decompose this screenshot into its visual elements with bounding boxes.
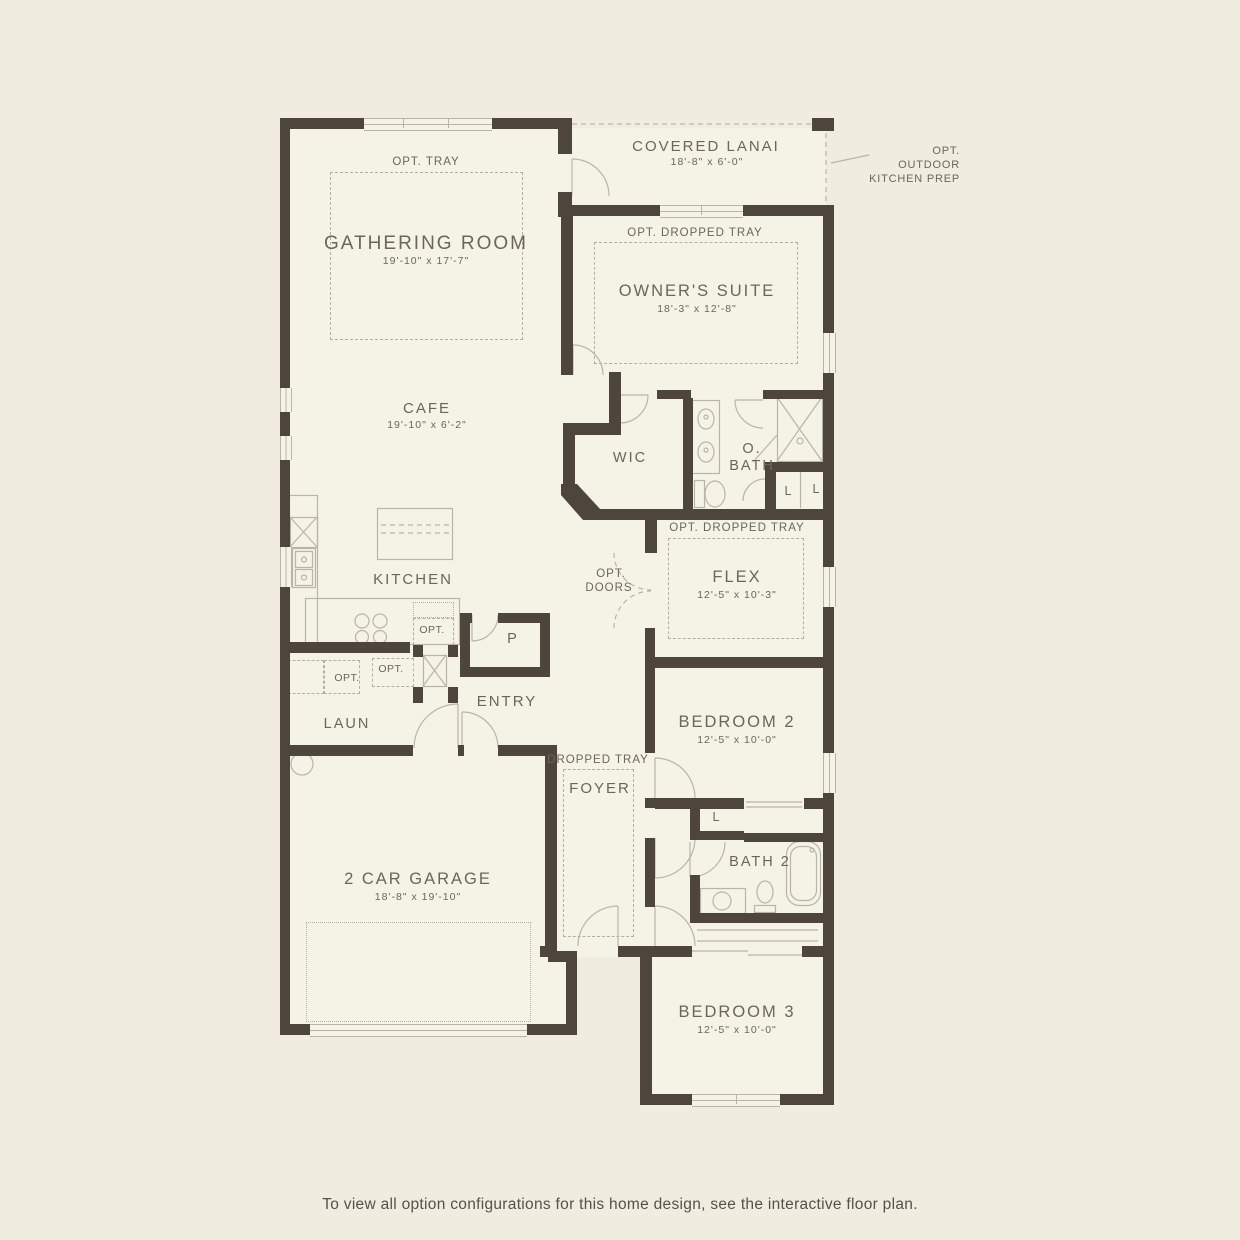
wall-segment <box>823 793 834 948</box>
wall-segment <box>645 628 655 753</box>
wall-segment <box>823 668 834 753</box>
annotation-opt-2: OPT. <box>378 663 403 675</box>
bathtub <box>787 842 821 906</box>
room-label-bedroom2: BEDROOM 2 <box>678 713 795 732</box>
wall-segment <box>690 831 744 840</box>
wall-segment <box>563 423 575 488</box>
leader-line <box>831 155 869 163</box>
room-label-garage: 2 CAR GARAGE <box>344 870 492 889</box>
wall-segment <box>448 687 458 703</box>
wall-segment <box>280 1024 310 1035</box>
room-dims-flex: 12'-5" x 10'-3" <box>697 589 777 601</box>
wall-segment <box>609 372 621 430</box>
wall-segment <box>280 587 290 1035</box>
room-label-linen-1: L <box>785 484 792 498</box>
wall-segment <box>280 118 290 388</box>
wall-segment <box>780 1094 834 1105</box>
window <box>280 436 292 460</box>
wall-segment <box>280 642 410 653</box>
window-mullion <box>403 119 404 128</box>
wall-segment <box>448 645 458 657</box>
footer-caption: To view all option configurations for th… <box>0 1196 1240 1214</box>
bedroom2-closet-rod <box>746 802 802 807</box>
window <box>823 753 836 793</box>
room-dims-covered-lanai: 18'-8" x 6'-0" <box>671 156 744 168</box>
wall-segment <box>413 645 423 657</box>
fixture-linework <box>0 0 1240 1240</box>
garage-door <box>310 1024 527 1037</box>
room-label-kitchen: KITCHEN <box>373 571 453 588</box>
room-dims-owners-suite: 18'-3" x 12'-8" <box>657 303 737 315</box>
annotation-dropped-tray-foyer: DROPPED TRAY <box>547 754 649 766</box>
wall-segment <box>655 798 744 809</box>
kitchen-sink <box>293 549 316 588</box>
wall-segment <box>280 118 364 129</box>
room-label-wic: WIC <box>613 450 647 466</box>
wall-segment <box>618 946 692 957</box>
wall-segment <box>645 657 834 668</box>
window <box>364 118 492 131</box>
window <box>823 333 836 373</box>
room-label-owners-suite: OWNER'S SUITE <box>619 282 776 301</box>
wall-segment <box>645 517 657 553</box>
bedroom3-closet-rod <box>692 930 818 955</box>
annotation-opt-1: OPT. <box>419 624 444 636</box>
window <box>280 388 292 412</box>
wall-segment <box>561 205 660 216</box>
room-dims-gathering-room: 19'-10" x 17'-7" <box>383 255 469 267</box>
wall-segment <box>492 118 568 129</box>
window <box>280 547 292 587</box>
wall-segment <box>640 946 652 1105</box>
wall-segment <box>548 951 577 962</box>
corner-cabinet <box>290 517 318 548</box>
annotation-outdoor-kitchen: OPT. OUTDOOR KITCHEN PREP <box>868 144 960 186</box>
water-heater <box>291 753 313 775</box>
room-label-pantry: P <box>507 631 519 647</box>
wall-segment <box>527 1024 577 1035</box>
wall-segment <box>280 745 413 756</box>
wall-segment <box>683 398 693 509</box>
room-label-linen-2: L <box>813 482 820 496</box>
room-label-flex: FLEX <box>712 568 761 587</box>
wall-segment <box>804 798 834 809</box>
annotation-opt-doors-line2: DOORS <box>585 582 632 594</box>
annotation-opt-dropped-tray-flex: OPT. DROPPED TRAY <box>669 522 804 534</box>
window-mullion <box>448 119 449 128</box>
room-label-entry: ENTRY <box>477 693 538 710</box>
window <box>823 567 836 607</box>
room-label-cafe: CAFE <box>403 400 451 417</box>
window-mullion <box>701 206 702 215</box>
room-dims-bedroom2: 12'-5" x 10'-0" <box>697 734 777 746</box>
wall-segment <box>763 390 823 399</box>
wall-segment <box>280 460 290 547</box>
wall-segment <box>690 875 700 915</box>
room-label-owners-bath-line1: O. <box>742 441 761 457</box>
wall-segment <box>566 962 577 1024</box>
room-dims-garage: 18'-8" x 19'-10" <box>375 891 461 903</box>
wall-segment <box>802 946 834 957</box>
annotation-opt-tray: OPT. TRAY <box>392 156 459 168</box>
wall-segment <box>280 412 290 436</box>
annotation-outdoor-kitchen-line2: KITCHEN PREP <box>868 172 960 186</box>
wall-segment <box>690 913 834 923</box>
wall-segment <box>458 745 464 756</box>
room-label-bath2: BATH 2 <box>729 854 791 870</box>
bath2-vanity <box>701 889 746 914</box>
owners-vanity <box>693 401 720 474</box>
bath2-toilet <box>755 881 776 913</box>
wall-segment <box>823 216 834 333</box>
room-label-bedroom3: BEDROOM 3 <box>678 1003 795 1022</box>
wall-segment <box>645 798 655 808</box>
annotation-outdoor-kitchen-line1: OPT. OUTDOOR <box>868 144 960 172</box>
wall-segment <box>823 948 834 1105</box>
room-label-foyer: FOYER <box>569 780 631 797</box>
wall-segment <box>545 755 557 951</box>
floor-plan-image: OPT. TRAY GATHERING ROOM 19'-10" x 17'-7… <box>0 0 1240 1240</box>
room-label-covered-lanai: COVERED LANAI <box>632 138 780 155</box>
room-label-linen-3: L <box>713 810 720 824</box>
range-cooktop <box>355 614 387 644</box>
wall-segment <box>558 118 572 154</box>
wall-segment <box>743 205 834 216</box>
annotation-opt-dropped-tray-owners: OPT. DROPPED TRAY <box>627 227 762 239</box>
shower <box>753 397 823 462</box>
wall-segment <box>744 833 834 842</box>
wall-segment <box>823 373 834 462</box>
annotation-opt-doors-line1: OPT. <box>596 568 626 580</box>
wall-segment <box>645 838 655 907</box>
window-mullion <box>736 1095 737 1104</box>
wall-segment <box>561 206 573 375</box>
room-label-owners-bath-line2: BATH <box>729 458 775 474</box>
kitchen-island <box>378 509 453 560</box>
wall-segment <box>413 687 423 703</box>
room-dims-cafe: 19'-10" x 6'-2" <box>387 419 467 431</box>
owners-toilet <box>695 481 726 508</box>
room-label-laundry: LAUN <box>324 716 371 732</box>
wall-segment <box>460 667 550 677</box>
wall-segment <box>540 613 550 677</box>
room-dims-bedroom3: 12'-5" x 10'-0" <box>697 1024 777 1036</box>
wall-segment <box>584 509 834 520</box>
door-arcs <box>414 159 765 946</box>
entry-closet <box>423 655 447 687</box>
wall-segment <box>812 118 834 131</box>
room-label-gathering-room: GATHERING ROOM <box>324 233 528 255</box>
annotation-opt-3: OPT. <box>334 672 359 684</box>
